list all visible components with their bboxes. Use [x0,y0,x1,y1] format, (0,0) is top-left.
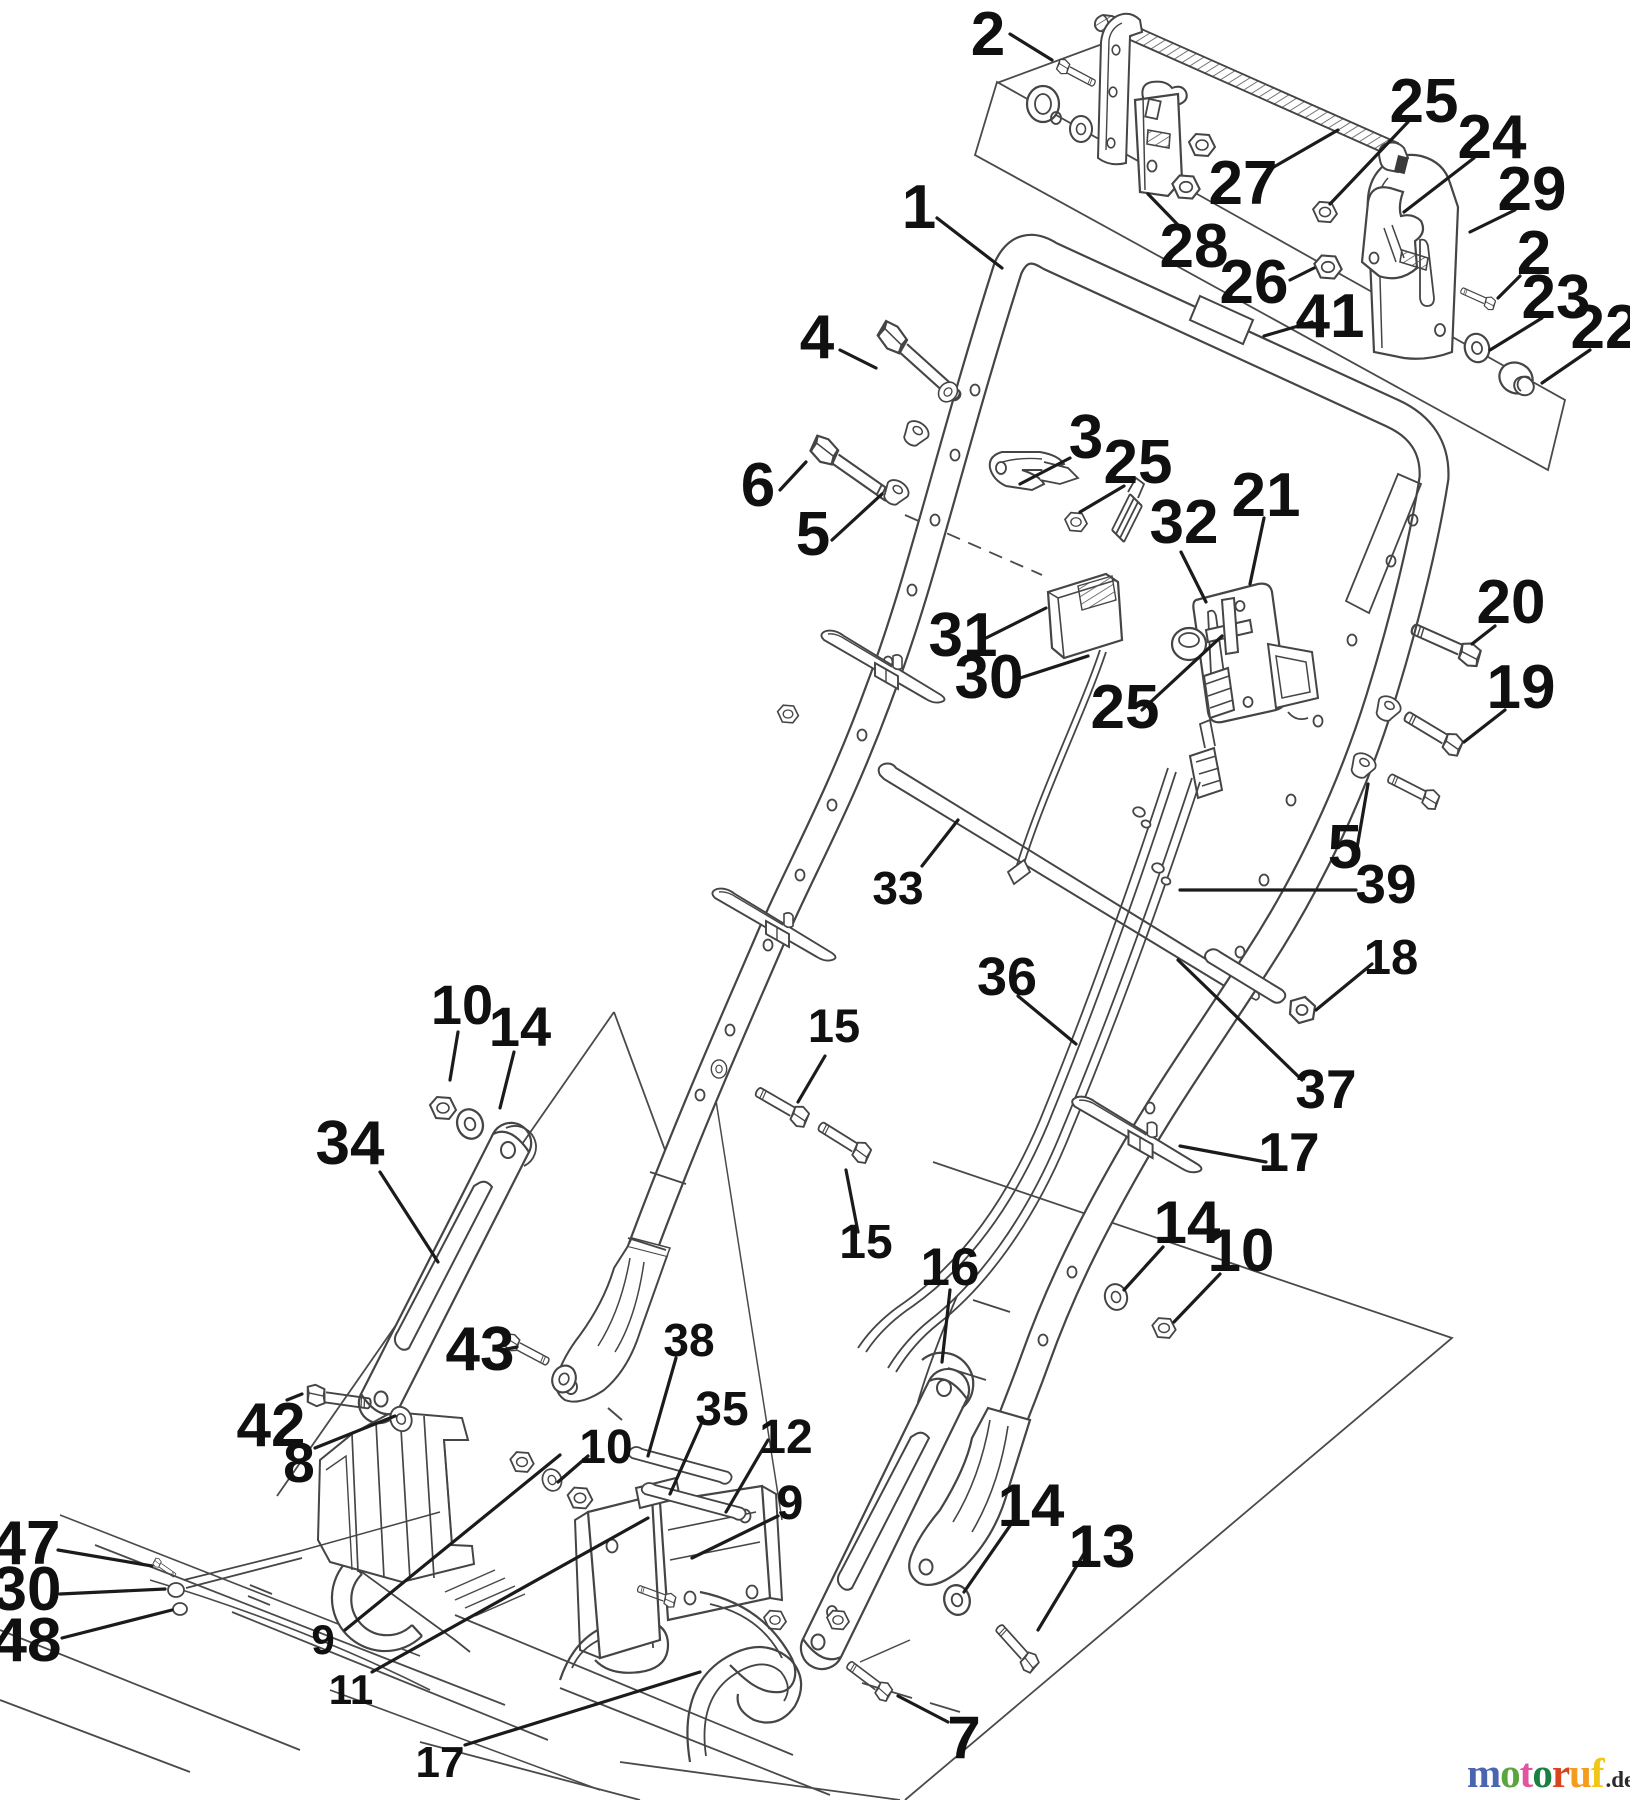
svg-text:19: 19 [1487,653,1556,722]
svg-text:6: 6 [741,451,775,520]
svg-text:28: 28 [1160,212,1229,281]
svg-text:33: 33 [872,862,923,914]
svg-text:41: 41 [1296,282,1365,351]
svg-text:17: 17 [416,1738,465,1787]
svg-text:26: 26 [1220,248,1289,317]
svg-text:14: 14 [998,1472,1065,1539]
svg-text:21: 21 [1232,461,1301,530]
svg-text:8: 8 [283,1431,315,1495]
svg-text:36: 36 [977,947,1037,1007]
svg-text:7: 7 [947,1704,980,1771]
svg-text:22: 22 [1571,293,1630,362]
svg-text:43: 43 [446,1315,515,1384]
svg-text:32: 32 [1150,488,1219,557]
svg-text:34: 34 [316,1109,385,1178]
svg-text:10: 10 [1208,1217,1275,1284]
svg-text:14: 14 [489,995,551,1058]
svg-text:48: 48 [0,1606,61,1675]
svg-text:1: 1 [902,173,936,242]
svg-text:10: 10 [579,1421,632,1474]
svg-text:9: 9 [777,1477,804,1530]
svg-text:3: 3 [1069,403,1103,472]
svg-text:17: 17 [1258,1121,1319,1183]
svg-text:12: 12 [759,1411,812,1464]
svg-text:5: 5 [796,500,830,569]
svg-text:25: 25 [1104,428,1173,497]
svg-text:29: 29 [1498,155,1567,224]
svg-text:18: 18 [1364,931,1419,985]
svg-text:9: 9 [311,1616,334,1663]
svg-text:25: 25 [1390,67,1459,136]
svg-text:35: 35 [695,1383,748,1436]
svg-text:2: 2 [971,0,1005,69]
svg-text:10: 10 [431,973,493,1036]
svg-text:4: 4 [800,303,835,372]
svg-text:16: 16 [921,1238,980,1297]
svg-text:38: 38 [663,1314,714,1366]
svg-text:11: 11 [329,1666,373,1713]
svg-text:13: 13 [1069,1513,1136,1580]
svg-text:37: 37 [1295,1058,1356,1120]
svg-text:27: 27 [1209,149,1278,218]
svg-text:39: 39 [1355,853,1416,915]
svg-text:20: 20 [1477,568,1546,637]
svg-text:15: 15 [839,1216,892,1269]
svg-text:15: 15 [808,999,860,1052]
svg-text:30: 30 [955,643,1024,712]
svg-text:25: 25 [1091,673,1160,742]
